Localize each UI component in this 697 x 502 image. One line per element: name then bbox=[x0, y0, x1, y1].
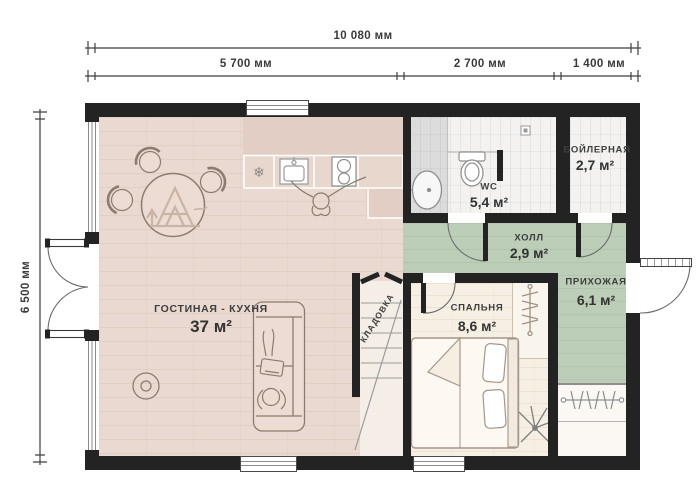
wall-segment bbox=[403, 213, 448, 223]
living-room-label: ГОСТИНАЯ - КУХНЯ bbox=[154, 303, 268, 315]
bedroom-label: СПАЛЬНЯ bbox=[451, 303, 504, 314]
french-doors-icon bbox=[45, 239, 89, 339]
wc-label: WC bbox=[480, 182, 497, 193]
boiler-label: БОЙЛЕРНАЯ bbox=[563, 145, 630, 156]
wall-segment bbox=[612, 213, 626, 223]
pillow bbox=[483, 389, 507, 428]
window bbox=[240, 456, 297, 472]
dim-segment-3: 1 400 мм bbox=[573, 58, 625, 70]
bedroom-area: 8,6 м² bbox=[458, 318, 496, 334]
dim-total-height: 6 500 мм bbox=[20, 261, 32, 313]
dim-segment-2: 2 700 мм bbox=[454, 58, 506, 70]
sink-icon bbox=[280, 157, 308, 184]
wall-segment bbox=[85, 232, 99, 244]
washbasin-icon bbox=[406, 171, 442, 209]
closet-hangers-icon bbox=[522, 285, 538, 336]
bed-icon bbox=[412, 338, 519, 448]
window bbox=[246, 100, 309, 116]
freezer-snowflake-icon: ❄ bbox=[253, 165, 265, 181]
wall-segment bbox=[85, 456, 640, 470]
wall-segment bbox=[626, 103, 640, 263]
stove-icon bbox=[332, 157, 356, 186]
wall-segment bbox=[85, 103, 99, 122]
wall-segment bbox=[403, 117, 411, 213]
wall-segment bbox=[556, 117, 570, 223]
wall-segment bbox=[85, 103, 640, 117]
hall-area: 2,9 м² bbox=[510, 245, 548, 261]
wall-segment bbox=[485, 213, 556, 223]
entrance-door-arc bbox=[640, 265, 690, 313]
wc-area: 5,4 м² bbox=[470, 194, 508, 210]
pillow bbox=[482, 343, 506, 383]
hall-label: ХОЛЛ bbox=[514, 233, 543, 244]
boiler-door-arc bbox=[578, 223, 612, 257]
wall-segment bbox=[548, 273, 558, 456]
window bbox=[85, 341, 99, 450]
wc-door-arc bbox=[448, 223, 486, 261]
entry-label: ПРИХОЖАЯ bbox=[565, 277, 626, 288]
wall-segment bbox=[85, 450, 99, 470]
wall-segment bbox=[352, 273, 360, 397]
wall-segment bbox=[403, 273, 411, 456]
wc-fixtures bbox=[406, 117, 530, 213]
boiler-area: 2,7 м² bbox=[576, 157, 614, 173]
entrance-door-leaf bbox=[640, 258, 692, 267]
storage-doors-icon bbox=[361, 274, 402, 282]
floor-plan: ❄ bbox=[0, 0, 697, 502]
wc-partition bbox=[497, 150, 503, 181]
window bbox=[85, 122, 99, 232]
wardrobe-hangers-icon bbox=[561, 391, 623, 409]
dim-segment-1: 5 700 мм bbox=[220, 58, 272, 70]
floor-drain-icon bbox=[521, 126, 530, 135]
wall-segment bbox=[626, 313, 640, 470]
living-room-area: 37 м² bbox=[190, 317, 232, 337]
wall-segment bbox=[570, 213, 578, 223]
entry-area: 6,1 м² bbox=[577, 292, 615, 308]
side-table-icon bbox=[133, 373, 159, 399]
wall-segment bbox=[85, 330, 99, 341]
window bbox=[413, 456, 465, 472]
wall-segment bbox=[455, 273, 548, 283]
plan-symbols: ❄ bbox=[0, 0, 697, 502]
dim-total-width: 10 080 мм bbox=[334, 30, 393, 42]
